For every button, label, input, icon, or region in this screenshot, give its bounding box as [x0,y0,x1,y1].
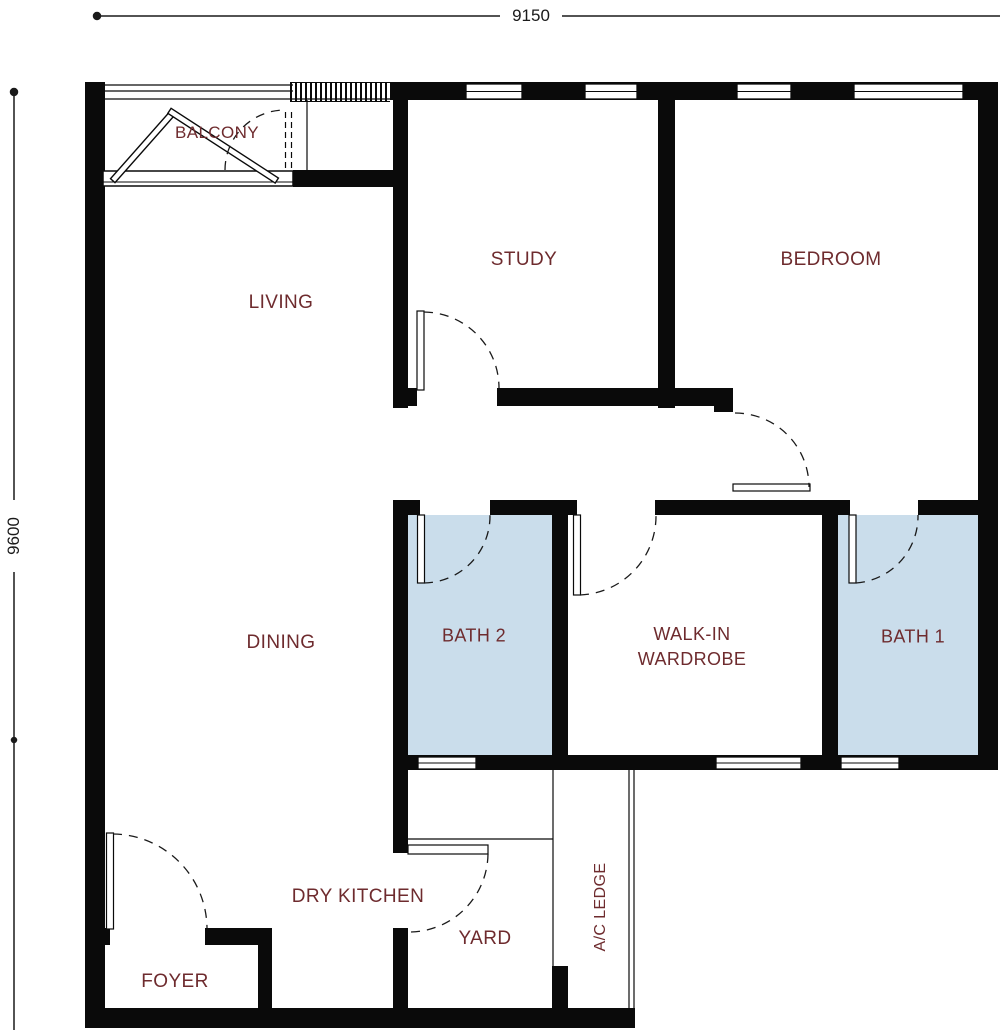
study-door [417,311,499,390]
door-leaf [408,845,488,854]
doors [107,110,919,932]
window-symbols-top [466,84,963,99]
door-leaf [574,515,581,595]
bedroom-window-2 [854,84,963,99]
bath2-door [418,515,491,583]
door-swing-arc [113,834,207,928]
door-swing-arc [424,312,499,388]
bedroom-window-1 [737,84,791,99]
room-label-ac-ledge: A/C LEDGE [592,863,610,952]
room-label-balcony: BALCONY [175,123,259,143]
floor-plan: BALCONY LIVING STUDY BEDROOM DINING BATH… [0,0,1000,1030]
room-label-dining: DINING [247,632,316,654]
dimension-dot [12,738,17,743]
width-dimension-label: 9150 [508,6,554,26]
wardrobe-label-line-1: WALK-IN [638,622,747,647]
door-swing-arc [735,413,809,487]
door-swing-arc [580,515,656,595]
door-leaf [107,833,114,929]
study-window-1 [466,84,522,99]
bath1-door [849,515,918,583]
wardrobe-door [574,515,657,595]
room-label-walk-in-wardrobe: WALK-IN WARDROBE [638,622,747,672]
room-label-study: STUDY [491,249,557,271]
door-swing-arc [856,515,918,583]
room-label-yard: YARD [459,928,512,950]
room-label-living: LIVING [249,292,314,314]
bath2-window [418,757,476,769]
height-dimension-label: 9600 [4,513,24,559]
room-label-bath-1: BATH 1 [881,627,945,648]
bath1-window [841,757,899,769]
door-leaf [417,311,424,390]
door-leaf [418,515,425,583]
plan-linework [0,0,1000,1030]
room-label-foyer: FOYER [141,971,208,993]
left-dimension-line [11,89,18,1030]
wardrobe-window [716,757,801,769]
wardrobe-label-line-2: WARDROBE [638,647,747,672]
window-symbols-bottom [418,757,899,769]
bedroom-door [733,413,810,491]
door-leaf [849,515,856,583]
study-window-2 [585,84,637,99]
foyer-entry-door [107,833,208,929]
room-label-dry-kitchen: DRY KITCHEN [292,886,425,908]
room-label-bath-2: BATH 2 [442,626,506,647]
room-label-bedroom: BEDROOM [781,249,882,271]
door-leaf [733,484,810,491]
door-swing-arc [424,515,490,583]
